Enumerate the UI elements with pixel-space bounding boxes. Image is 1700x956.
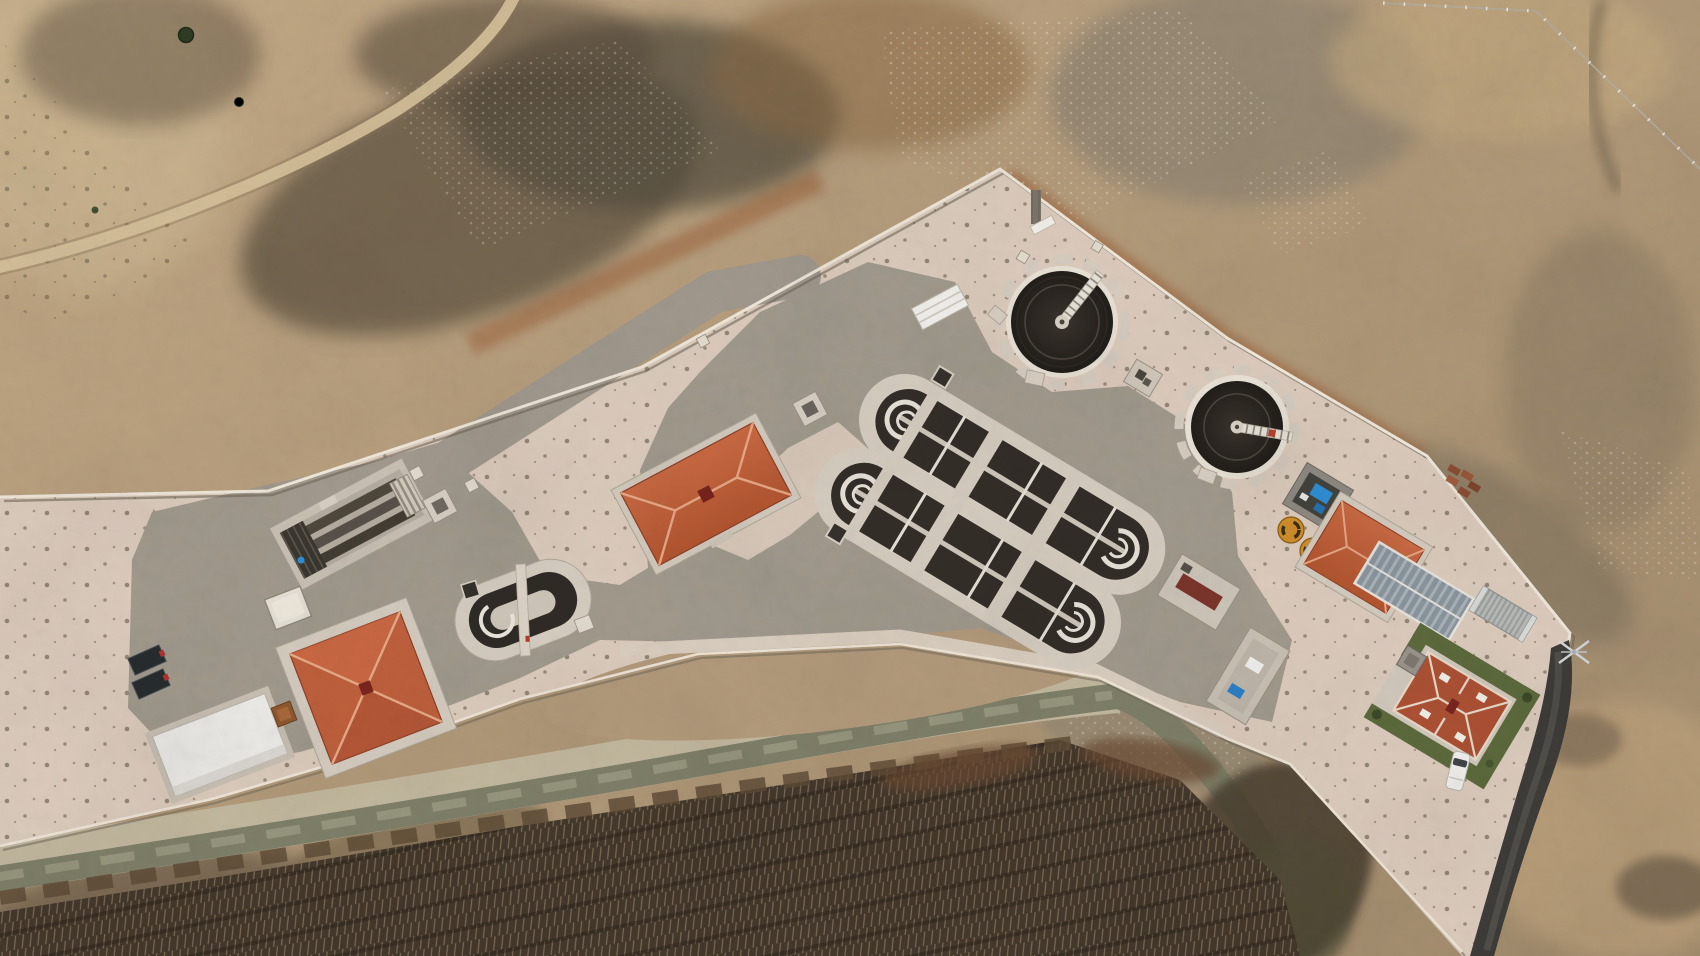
- aerial-photo: [0, 0, 1700, 956]
- photo-grain-fine: [0, 0, 1700, 956]
